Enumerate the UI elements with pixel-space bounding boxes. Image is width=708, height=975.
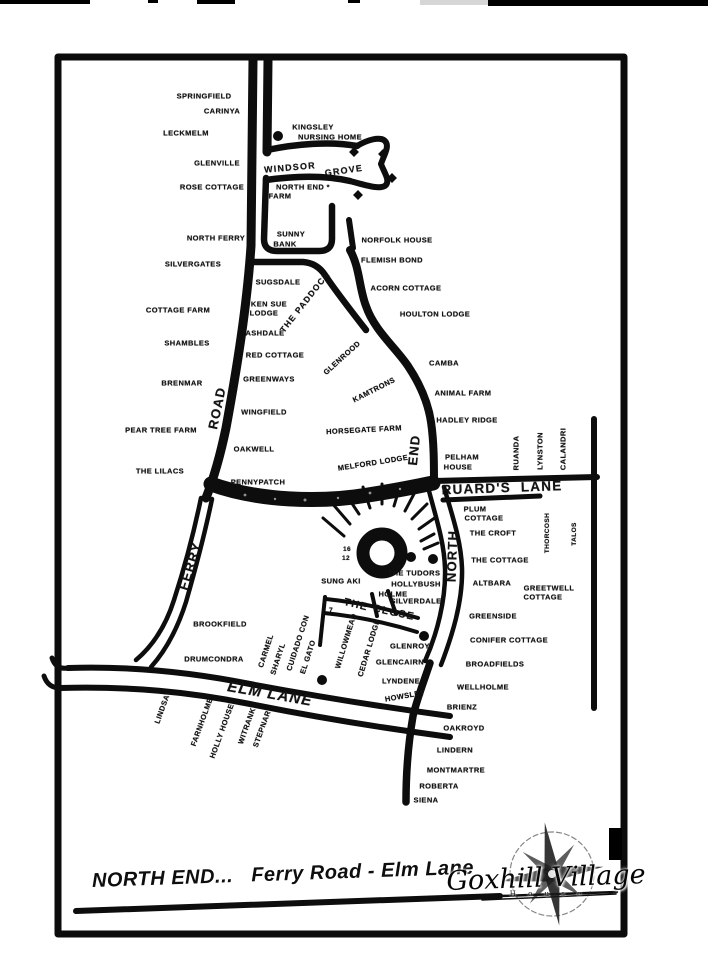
label-brienz: BRIENZ	[447, 703, 477, 711]
label-drumcondra: DRUMCONDRA	[184, 655, 243, 663]
diamond-symbol	[353, 190, 363, 200]
label-farnholme: FARNHOLME	[190, 697, 215, 748]
label-farm: FARM	[269, 192, 292, 200]
label-ruanda: RUANDA	[512, 436, 520, 471]
label-willowmead: WILLOWMEAD	[334, 612, 358, 669]
label-flemish-bond: FLEMISH BOND	[361, 256, 423, 264]
label-glenville: GLENVILLE	[194, 159, 240, 167]
label-plum: PLUM	[464, 505, 487, 513]
scan-artifact	[148, 0, 158, 3]
scan-artifact	[420, 0, 490, 5]
label-grove: GROVE	[324, 164, 363, 178]
label-nursing-home: NURSING HOME	[298, 133, 362, 141]
label-house: HOUSE	[444, 463, 473, 471]
label-oakroyd: OAKROYD	[443, 724, 484, 732]
dot-symbol	[273, 131, 283, 141]
label-sharyl: SHARYL	[269, 642, 286, 676]
label-leckmelm: LECKMELM	[163, 129, 209, 137]
dot-symbol	[406, 552, 416, 562]
label-pennypatch: PENNYPATCH	[231, 478, 286, 486]
scan-artifact	[348, 0, 360, 3]
label-hadley-ridge: HADLEY RIDGE	[436, 416, 497, 424]
diamond-symbol	[387, 173, 397, 183]
label-montmartre: MONTMARTRE	[427, 766, 485, 774]
label-the-lilacs: THE LILACS	[136, 467, 184, 475]
label-lodge: LODGE	[250, 309, 279, 317]
label-shambles: SHAMBLES	[164, 339, 209, 347]
label-bank: BANK	[273, 240, 296, 248]
label-glenroy: GLENROY	[390, 642, 430, 650]
label-elm-lane: ELM LANE	[226, 679, 314, 709]
label-16: 16	[343, 547, 351, 554]
label-houlton-lodge: HOULTON LODGE	[400, 310, 470, 318]
label-kingsley: KINGSLEY	[292, 123, 334, 131]
label-carinya: CARINYA	[204, 107, 240, 115]
label-calandri: CALANDRI	[559, 428, 567, 470]
label-norfolk-house: NORFOLK HOUSE	[361, 236, 432, 244]
label-melford-lodge: MELFORD LODGE	[337, 454, 408, 473]
label-holly-house: HOLLY HOUSE	[209, 703, 236, 760]
label-pelham: PELHAM	[445, 453, 479, 461]
label-north: NORTH	[445, 530, 460, 583]
label-altbara: ALTBARA	[473, 579, 512, 587]
label-brenmar: BRENMAR	[161, 379, 202, 387]
label-ferry: FERRY	[177, 540, 204, 591]
label-red-cottage: RED COTTAGE	[246, 351, 304, 359]
label-the: THE	[343, 597, 369, 613]
label-roberta: ROBERTA	[419, 782, 458, 790]
label-ashdale: ASHDALE	[245, 329, 284, 337]
label-cottage-farm: COTTAGE FARM	[146, 306, 210, 314]
scan-artifact	[197, 0, 235, 4]
dot-symbol	[428, 554, 438, 564]
label-silvergates: SILVERGATES	[165, 260, 221, 268]
label-glenrood: GLENROOD	[322, 340, 362, 377]
label-north-ferry: NORTH FERRY	[187, 234, 245, 242]
dot-symbol	[317, 675, 327, 685]
label-camba: CAMBA	[429, 359, 459, 367]
label-greetwell: GREETWELL	[524, 584, 575, 592]
label-sugsdale: SUGSDALE	[256, 278, 301, 286]
label-12: 12	[342, 556, 350, 563]
label-pear-tree-farm: PEAR TREE FARM	[125, 426, 197, 434]
label-greenside: GREENSIDE	[469, 612, 517, 620]
diamond-symbol	[378, 149, 388, 159]
label-lyndene: LYNDENE	[382, 677, 420, 685]
label-cedar-lodge: CEDAR LODGE	[357, 618, 382, 677]
label-ken-sue: KEN SUE	[251, 300, 287, 308]
label-lindern: LINDERN	[437, 746, 473, 754]
label-sunny: SUNNY	[277, 230, 305, 238]
label-horsegate-farm: HORSEGATE FARM	[326, 424, 402, 435]
label-the-croft: THE CROFT	[470, 529, 517, 537]
label-north-end: NORTH END *	[276, 183, 330, 191]
label-howsley: HOWSLEY	[384, 689, 425, 703]
logo-subtitle: H o u s e	[510, 890, 586, 898]
label-acorn-cottage: ACORN COTTAGE	[371, 284, 442, 292]
label-the-cottage: THE COTTAGE	[471, 556, 529, 564]
label-cottage: COTTAGE	[524, 593, 563, 601]
label-oakwell: OAKWELL	[234, 445, 275, 453]
label-windsor: WINDSOR	[264, 161, 316, 174]
scan-artifact	[609, 828, 622, 860]
scan-artifact	[488, 0, 708, 6]
label-layer: SPRINGFIELDCARINYALECKMELMKINGSLEYNURSIN…	[0, 0, 708, 975]
label-greenways: GREENWAYS	[243, 375, 295, 383]
label-hollybush: HOLLYBUSH	[391, 580, 441, 588]
label-lynston: LYNSTON	[536, 432, 544, 470]
label-siena: SIENA	[414, 796, 439, 804]
label-silverdale: SILVERDALE	[391, 597, 442, 605]
label-kamtrons: KAMTRONS	[352, 376, 397, 404]
diamond-symbol	[349, 147, 359, 157]
label-ruard-s-lane: RUARD'S LANE	[441, 479, 562, 497]
label-thorcosh: THORCOSH	[545, 513, 552, 553]
label-cottage: COTTAGE	[465, 514, 504, 522]
label-wellholme: WELLHOLME	[457, 683, 509, 691]
label-glencairn: GLENCAIRN	[376, 658, 424, 666]
label-wingfield: WINGFIELD	[241, 408, 287, 416]
label-road: ROAD	[206, 386, 228, 431]
scan-artifact	[0, 0, 90, 4]
label-sung-aki: SUNG AKI	[321, 577, 361, 585]
label-animal-farm: ANIMAL FARM	[435, 389, 492, 397]
label-7: 7	[329, 608, 333, 615]
dot-symbol	[419, 631, 429, 641]
label-rose-cottage: ROSE COTTAGE	[180, 183, 244, 191]
map-page: SPRINGFIELDCARINYALECKMELMKINGSLEYNURSIN…	[0, 0, 708, 975]
label-the-tudors: THE TUDORS	[388, 569, 441, 577]
label-conifer-cottage: CONIFER COTTAGE	[470, 636, 548, 644]
label-broadfields: BROADFIELDS	[466, 660, 525, 668]
label-talos: TALOS	[572, 522, 579, 546]
label-brookfield: BROOKFIELD	[193, 620, 247, 628]
label-springfield: SPRINGFIELD	[177, 92, 232, 100]
label-lindsay: LINDSAY	[153, 689, 172, 724]
